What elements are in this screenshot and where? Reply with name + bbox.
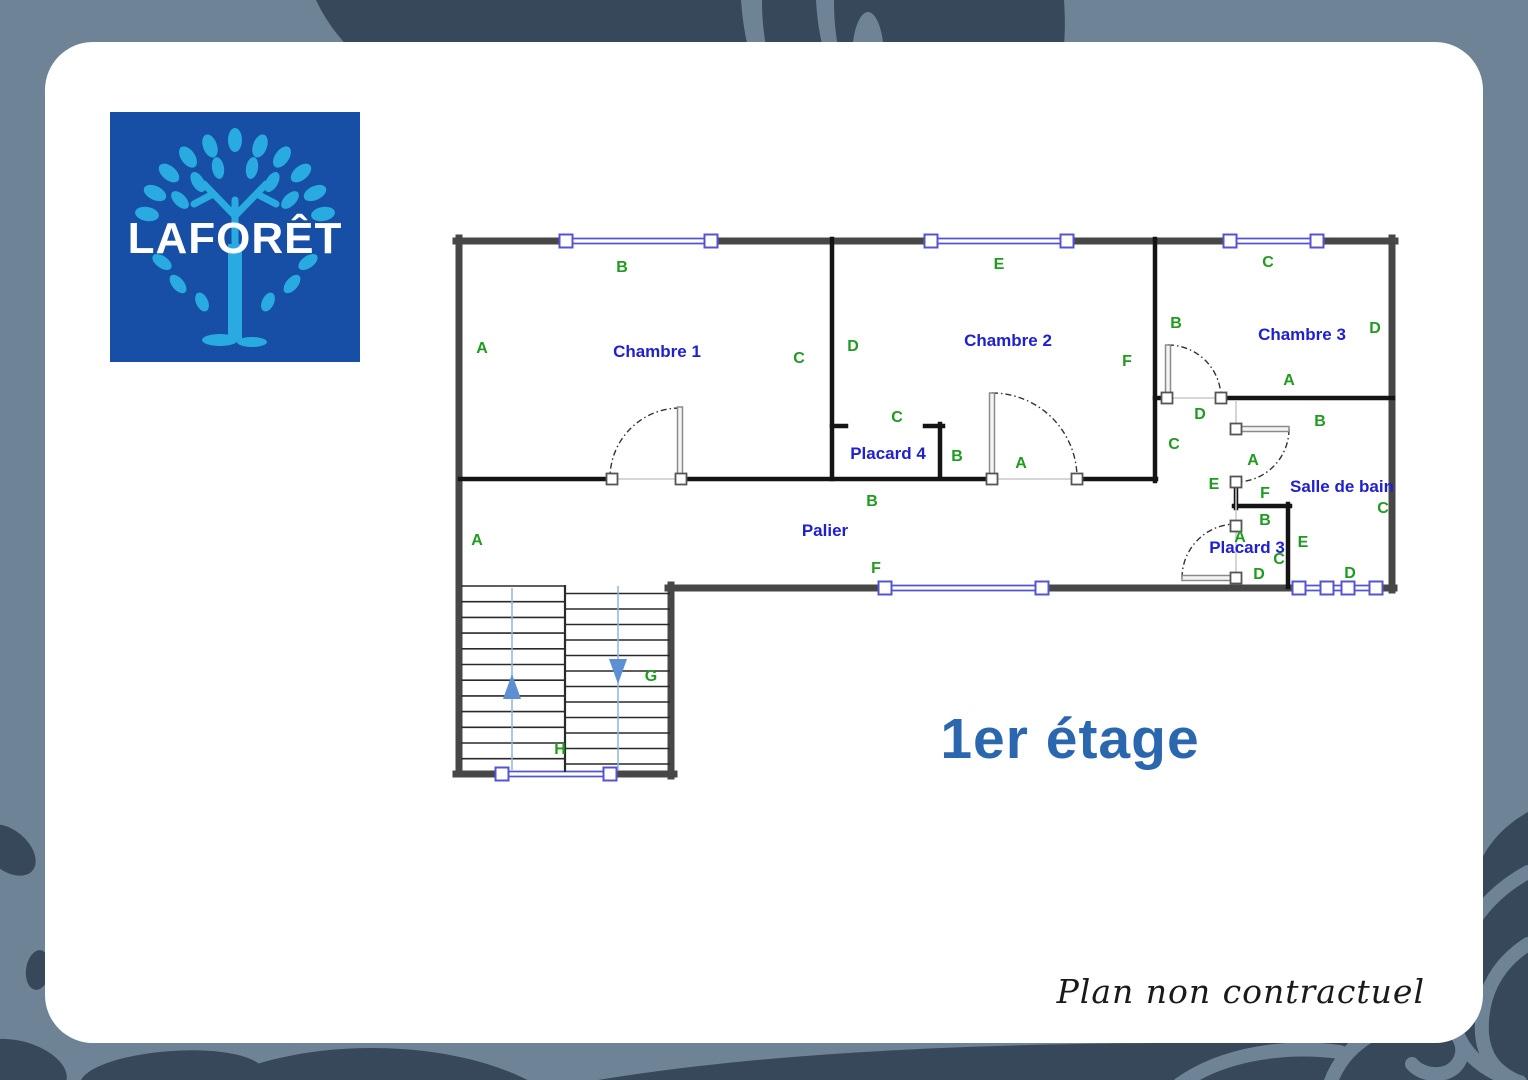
wall-label: A — [1247, 452, 1259, 469]
page: LAFORÊT — [0, 0, 1528, 1080]
room-label-chambre-2: Chambre 2 — [964, 331, 1052, 350]
window-symbol — [496, 768, 617, 781]
window-symbol — [925, 235, 1074, 248]
wall-label: C — [1168, 436, 1180, 453]
window-symbol — [560, 235, 718, 248]
wall-label: C — [1262, 254, 1274, 271]
wall-label: C — [891, 409, 903, 426]
room-label-salle-de-bain: Salle de bain — [1290, 477, 1394, 496]
wall-label: B — [1314, 413, 1326, 430]
disclaimer-text: Plan non contractuel — [1057, 972, 1425, 1011]
window-symbol — [1224, 235, 1324, 248]
brand-wordmark: LAFORÊT — [128, 213, 343, 263]
wall-label: B — [951, 448, 963, 465]
wall-label: F — [871, 560, 881, 577]
wall-label: D — [1253, 566, 1265, 583]
wall-label: C — [1377, 500, 1389, 517]
door-symbol — [990, 393, 1078, 478]
wall-label: E — [1298, 534, 1309, 551]
room-label-palier: Palier — [802, 521, 849, 540]
laforet-logo: LAFORÊT — [110, 112, 360, 362]
wall-label: B — [1170, 315, 1182, 332]
room-label-placard-4: Placard 4 — [850, 444, 926, 463]
wall-label: D — [847, 338, 859, 355]
wall-label: E — [994, 256, 1005, 273]
wall-label: D — [1194, 406, 1206, 423]
wall-label: F — [1122, 353, 1132, 370]
wall-label: B — [616, 259, 628, 276]
wall-label: D — [1344, 565, 1356, 582]
stairs-up-arrow-icon — [503, 674, 521, 699]
wall-label: A — [471, 532, 483, 549]
door-symbol — [1166, 345, 1222, 398]
wall-label: D — [1369, 320, 1381, 337]
wall-label: A — [1015, 455, 1027, 472]
door-jamb-markers — [607, 393, 1242, 584]
wall-label: B — [1259, 512, 1271, 529]
wall-label: H — [554, 741, 566, 758]
wall-label: C — [793, 350, 805, 367]
room-label-chambre-1: Chambre 1 — [613, 342, 701, 361]
floor-title: 1er étage — [905, 706, 1235, 772]
wall-label: G — [645, 668, 657, 685]
door-symbol — [610, 407, 683, 478]
wall-label: A — [1283, 372, 1295, 389]
window-symbol — [879, 582, 1049, 595]
door-symbols — [607, 345, 1290, 584]
wall-label: E — [1209, 476, 1220, 493]
room-label-chambre-3: Chambre 3 — [1258, 325, 1346, 344]
door-symbol — [1236, 427, 1289, 483]
wall-label: B — [866, 493, 878, 510]
wall-label: F — [1260, 485, 1270, 502]
room-label-placard-3: Placard 3 — [1209, 538, 1285, 557]
room-labels: Chambre 1 Chambre 2 Chambre 3 Placard 4 … — [613, 325, 1394, 557]
inner-walls — [460, 239, 1393, 587]
wall-label: A — [476, 340, 488, 357]
window-symbol — [1293, 582, 1384, 595]
